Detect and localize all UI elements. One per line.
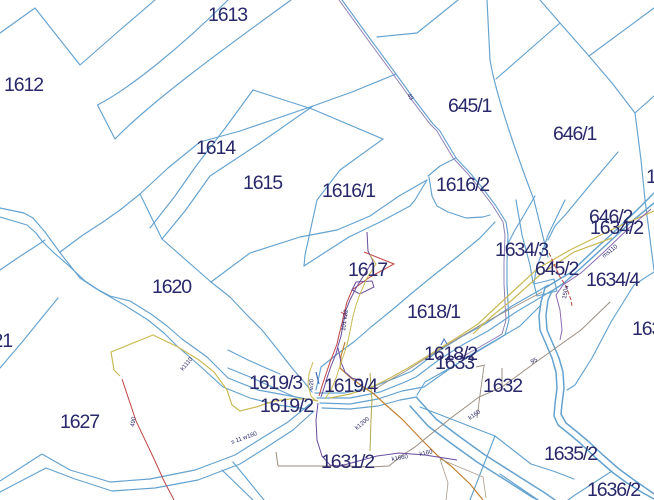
svg-text:1634/4: 1634/4: [586, 269, 640, 291]
svg-text:1619/2: 1619/2: [260, 395, 313, 417]
svg-text:1619/3: 1619/3: [249, 372, 302, 394]
svg-text:1632: 1632: [483, 375, 522, 397]
svg-text:1631/2: 1631/2: [321, 451, 374, 473]
svg-text:1617: 1617: [348, 259, 387, 281]
svg-text:1634/2: 1634/2: [590, 217, 643, 239]
svg-text:1636/2: 1636/2: [587, 479, 640, 500]
svg-text:1621: 1621: [0, 330, 12, 352]
svg-text:164: 164: [646, 166, 654, 188]
svg-text:1619/4: 1619/4: [324, 375, 378, 397]
svg-text:646/1: 646/1: [553, 123, 597, 145]
svg-text:1614: 1614: [196, 137, 236, 159]
svg-text:645/2: 645/2: [535, 258, 579, 280]
svg-text:1613: 1613: [208, 4, 247, 26]
svg-text:1618/1: 1618/1: [407, 301, 460, 323]
svg-text:1635/2: 1635/2: [544, 443, 597, 465]
svg-text:1612: 1612: [4, 74, 43, 96]
svg-text:1616/1: 1616/1: [322, 180, 375, 202]
svg-text:1633: 1633: [435, 352, 474, 374]
svg-text:1627: 1627: [60, 411, 99, 433]
svg-text:1635/1: 1635/1: [632, 318, 654, 340]
svg-text:w20: w20: [309, 378, 315, 391]
svg-text:645/1: 645/1: [448, 95, 492, 117]
svg-text:1615: 1615: [243, 172, 283, 194]
svg-text:1620: 1620: [152, 276, 192, 298]
svg-text:1616/2: 1616/2: [436, 174, 489, 196]
